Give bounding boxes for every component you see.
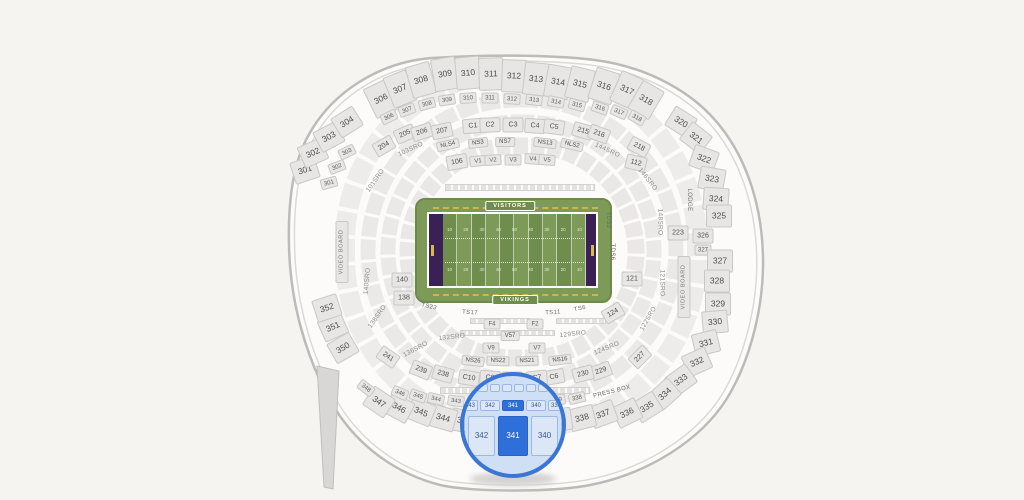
yard-number: 40 xyxy=(528,227,533,232)
magnifier-lens[interactable]: 343342341340339 343342341340339 xyxy=(460,372,566,478)
yard-number: 10 xyxy=(447,227,452,232)
section-310[interactable]: 310 xyxy=(459,92,477,104)
section-tds2: TDS2 xyxy=(605,212,611,229)
section-312[interactable]: 312 xyxy=(503,93,521,105)
lens-section-343[interactable]: 343 xyxy=(462,400,478,411)
yard-number: 40 xyxy=(496,267,501,272)
lens-main-row: 343342341340339 xyxy=(460,416,566,456)
yard-number: 40 xyxy=(528,267,533,272)
lens-seat-block xyxy=(538,384,548,392)
lens-section-340[interactable]: 340 xyxy=(526,400,546,411)
section-121[interactable]: 121 xyxy=(622,272,643,287)
goal-post-right xyxy=(591,245,594,256)
section-313[interactable]: 313 xyxy=(525,94,543,107)
section-ns21[interactable]: NS21 xyxy=(515,356,538,367)
yard-numbers-bottom: 102030405040302010 xyxy=(447,267,582,272)
section-video-board: VIDEO BOARD xyxy=(336,221,349,283)
lens-section-339[interactable]: 339 xyxy=(548,400,564,411)
suite-row-strip xyxy=(445,184,595,191)
yard-number: 10 xyxy=(577,227,582,232)
yard-number: 50 xyxy=(512,267,517,272)
section-c2[interactable]: C2 xyxy=(479,117,501,133)
section-311[interactable]: 311 xyxy=(482,93,499,104)
goal-post-left xyxy=(431,245,434,256)
field-stripe xyxy=(443,214,457,286)
section-f4[interactable]: F4 xyxy=(484,319,501,330)
section-f2[interactable]: F2 xyxy=(527,319,544,330)
section-ts17: TS17 xyxy=(462,309,478,316)
section-lodge: LODGE xyxy=(686,188,692,211)
yard-number: 30 xyxy=(479,227,484,232)
football-field: 102030405040302010 102030405040302010 VI… xyxy=(415,198,612,303)
lens-seat-block xyxy=(514,384,524,392)
yard-number: 30 xyxy=(544,267,549,272)
field-stripe xyxy=(472,214,486,286)
section-325[interactable]: 325 xyxy=(706,205,732,228)
section-ns7[interactable]: NS7 xyxy=(495,137,515,147)
section-tds6: TDS6 xyxy=(609,244,615,261)
section-v2[interactable]: V2 xyxy=(484,154,502,166)
lens-seat-block xyxy=(526,384,536,392)
yard-numbers-top: 102030405040302010 xyxy=(447,227,582,232)
visitors-endzone-label: VISITORS xyxy=(485,201,535,211)
yard-number: 40 xyxy=(496,227,501,232)
section-148sro: 148SRO xyxy=(656,209,663,236)
section-223[interactable]: 223 xyxy=(668,226,689,241)
yard-number: 50 xyxy=(512,227,517,232)
ramp-structure xyxy=(317,366,339,489)
yard-number: 20 xyxy=(463,267,468,272)
section-328[interactable]: 328 xyxy=(704,270,730,293)
hash-marks-top xyxy=(445,238,584,239)
lens-seat-block xyxy=(502,384,512,392)
yard-number: 10 xyxy=(577,267,582,272)
section-video-board: VIDEO BOARD xyxy=(678,256,691,318)
field-stripe xyxy=(457,214,471,286)
lens-section-340[interactable]: 340 xyxy=(531,416,558,456)
hash-marks-bottom xyxy=(445,262,584,263)
lens-section-341[interactable]: 341 xyxy=(498,416,528,456)
section-v9[interactable]: V9 xyxy=(483,343,500,354)
yard-number: 30 xyxy=(544,227,549,232)
field-stripe xyxy=(557,214,571,286)
section-v7[interactable]: V7 xyxy=(529,343,546,354)
lens-section-342[interactable]: 342 xyxy=(468,416,495,456)
yard-number: 20 xyxy=(561,227,566,232)
section-121sro: 121SRO xyxy=(658,270,665,297)
section-ns22[interactable]: NS22 xyxy=(486,356,509,367)
section-140[interactable]: 140 xyxy=(392,273,413,288)
lens-strip-row: 343342341340339 xyxy=(460,400,566,411)
section-c3[interactable]: C3 xyxy=(503,118,524,133)
table-seat-strip-right xyxy=(556,318,606,324)
yard-number: 10 xyxy=(447,267,452,272)
stadium-seat-map: 102030405040302010 102030405040302010 VI… xyxy=(0,0,1024,500)
lens-section-342[interactable]: 342 xyxy=(480,400,500,411)
lens-seat-block xyxy=(478,384,488,392)
section-138[interactable]: 138 xyxy=(394,291,415,306)
field-stripe xyxy=(486,214,500,286)
section-326[interactable]: 326 xyxy=(693,229,714,244)
section-c5[interactable]: C5 xyxy=(543,118,566,136)
yard-number: 30 xyxy=(479,267,484,272)
section-ts11: TS11 xyxy=(545,309,561,316)
field-stripe xyxy=(529,214,543,286)
section-v57[interactable]: V57 xyxy=(501,331,520,341)
field-stripe xyxy=(572,214,586,286)
lens-section-341[interactable]: 341 xyxy=(502,400,524,411)
playing-field: 102030405040302010 102030405040302010 xyxy=(427,212,598,288)
field-stripe xyxy=(543,214,557,286)
yard-number: 20 xyxy=(561,267,566,272)
lens-seat-block xyxy=(490,384,500,392)
section-v3[interactable]: V3 xyxy=(505,155,522,166)
field-stripe xyxy=(514,214,528,286)
vikings-endzone-label: VIKINGS xyxy=(492,295,538,305)
field-stripe xyxy=(500,214,514,286)
field-stripes xyxy=(443,214,586,286)
yard-number: 20 xyxy=(463,227,468,232)
section-v5[interactable]: V5 xyxy=(538,154,556,166)
lens-mini-row xyxy=(478,384,548,392)
